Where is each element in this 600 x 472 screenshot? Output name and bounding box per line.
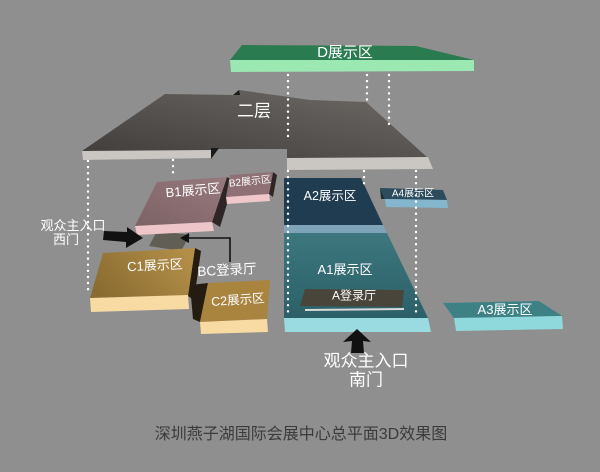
c1-area-front-face <box>90 295 189 312</box>
a1-area-label: A1展示区 <box>318 263 373 277</box>
floorplan-scene <box>0 0 600 472</box>
west-entrance-label-line2: 西门 <box>53 233 79 247</box>
second-floor-ledge-right <box>287 157 433 170</box>
c1-area-label: C1展示区 <box>127 257 183 274</box>
a3-area-front-face <box>454 316 563 331</box>
d-area-front-face <box>230 60 474 72</box>
south-entrance-label-line1: 观众主入口 <box>324 353 409 372</box>
a2-area-front-face <box>284 225 387 233</box>
bc-hall-label: BC登录厅 <box>197 262 257 280</box>
a2-area-label: A2展示区 <box>304 190 357 204</box>
a4-area-label: A4展示区 <box>392 189 434 200</box>
floorplan-stage: D展示区 二层 B1展示区 B2展示区 A2展示区 A4展示区 C1展示区 BC… <box>0 0 600 472</box>
south-entrance-label-line2: 南门 <box>349 372 383 391</box>
a-hall-label: A登录厅 <box>332 289 376 302</box>
a-hall-underline <box>305 309 404 310</box>
d-area-label: D展示区 <box>317 45 373 62</box>
diagram-caption: 深圳燕子湖国际会展中心总平面3D效果图 <box>155 420 447 444</box>
a3-area-label: A3展示区 <box>478 303 533 317</box>
second-floor-label: 二层 <box>237 103 271 122</box>
